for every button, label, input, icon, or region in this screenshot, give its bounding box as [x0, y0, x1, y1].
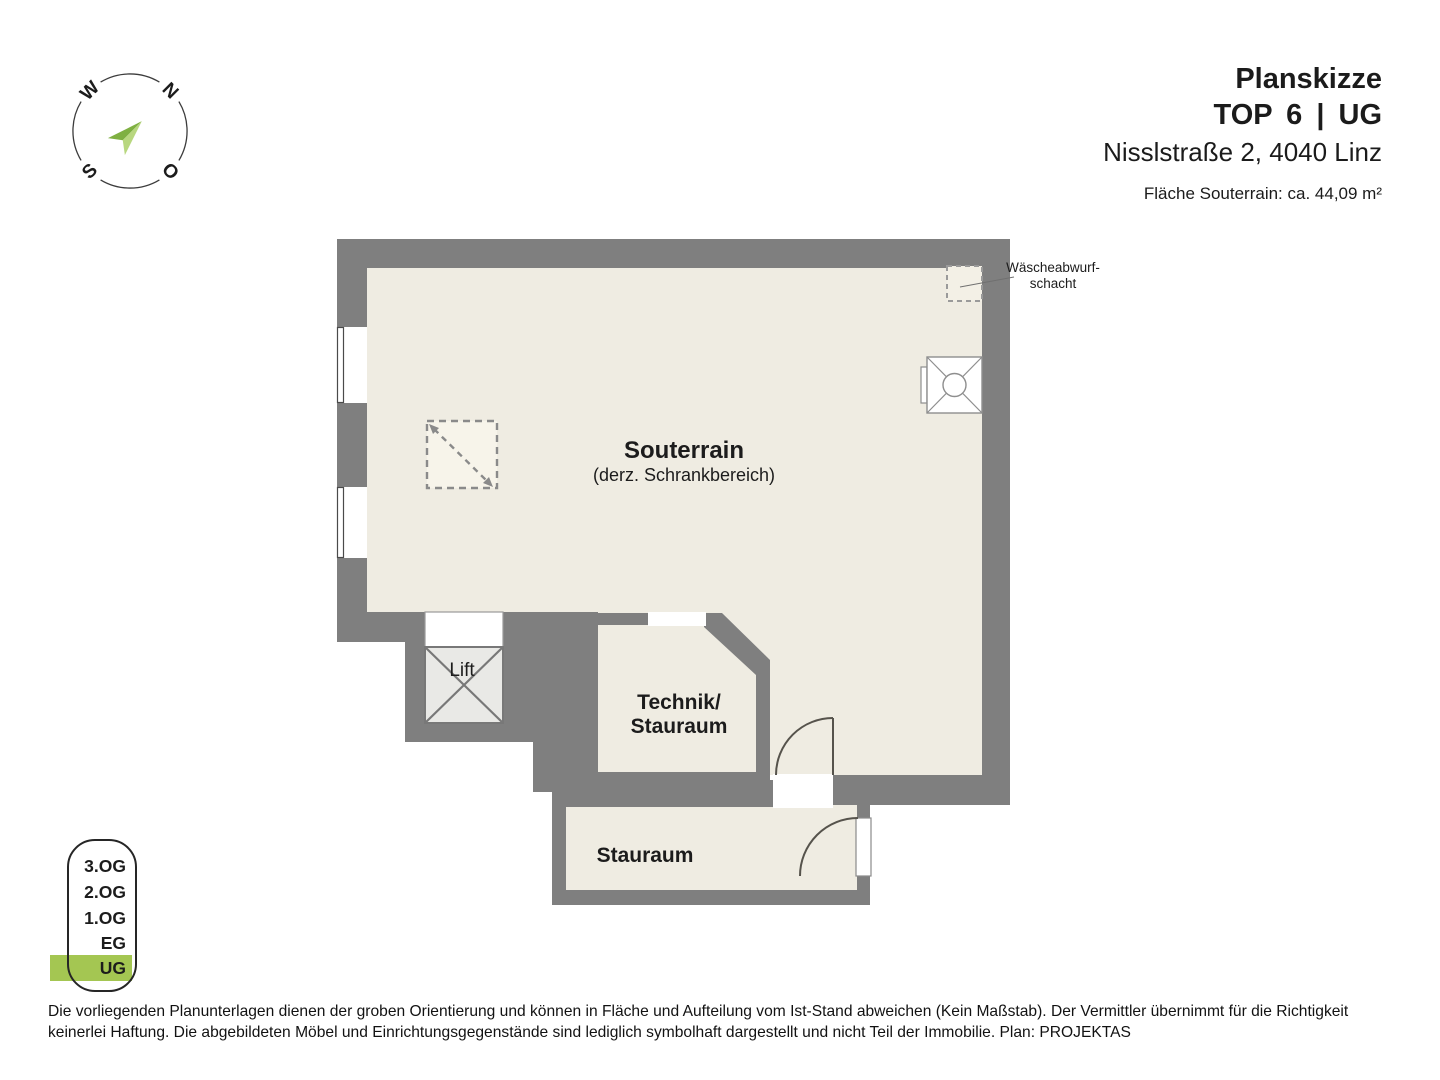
floor-item-eg[interactable]: EG [101, 933, 126, 953]
area-note: Fläche Souterrain: ca. 44,09 m² [1103, 184, 1382, 204]
window-left-upper [337, 327, 367, 403]
technik-label-line1: Technik/ [637, 691, 721, 714]
floor-plan: Lift Wäscheabwurf- schacht [337, 239, 1100, 905]
souterrain-label: Souterrain [624, 437, 744, 464]
floor-selector: 3.OG 2.OG 1.OG EG UG [50, 840, 136, 991]
floor-item-ug[interactable]: UG [100, 958, 126, 978]
compass-letter-w: W [76, 77, 104, 105]
lift-label: Lift [449, 660, 475, 681]
window-left-lower [337, 487, 367, 558]
compass-rose: N O S W [73, 74, 187, 188]
wardrobe-dashed-box [427, 421, 497, 488]
floorplan-page: { "header": { "title": "Planskizze", "un… [0, 0, 1440, 1080]
lift-door-opening [425, 612, 503, 647]
floor-item-2og[interactable]: 2.OG [84, 882, 126, 902]
compass-arrow-icon [108, 113, 150, 155]
stauraum-door-leaf [856, 818, 871, 876]
disclaimer-line2: keinerlei Haftung. Die abgebildeten Möbe… [48, 1023, 1348, 1044]
laundry-chute: Wäscheabwurf- schacht [947, 260, 1100, 301]
floor-item-3og[interactable]: 3.OG [84, 856, 126, 876]
technik-door-opening [648, 612, 706, 626]
lift-shaft: Lift [425, 647, 503, 723]
floor-item-1og[interactable]: 1.OG [84, 908, 126, 928]
chute-label-line2: schacht [1030, 276, 1077, 291]
title-block: Planskizze TOP 6 | UG Nisslstraße 2, 404… [1103, 62, 1382, 204]
page-title: Planskizze [1103, 62, 1382, 97]
disclaimer-line1: Die vorliegenden Planunterlagen dienen d… [48, 1002, 1348, 1023]
stauraum-label: Stauraum [597, 844, 694, 867]
corridor-opening [773, 774, 833, 808]
chute-label-line1: Wäscheabwurf- [1006, 260, 1100, 275]
compass-letter-o: O [157, 159, 182, 184]
unit-floor-label: TOP 6 | UG [1103, 97, 1382, 134]
souterrain-sublabel: (derz. Schrankbereich) [593, 465, 775, 485]
disclaimer: Die vorliegenden Planunterlagen dienen d… [48, 1002, 1348, 1043]
compass-letter-n: N [158, 79, 183, 104]
compass-letter-s: S [78, 160, 102, 184]
address: Nisslstraße 2, 4040 Linz [1103, 134, 1382, 171]
technik-label-line2: Stauraum [631, 715, 728, 738]
shower-symbol [921, 357, 982, 413]
